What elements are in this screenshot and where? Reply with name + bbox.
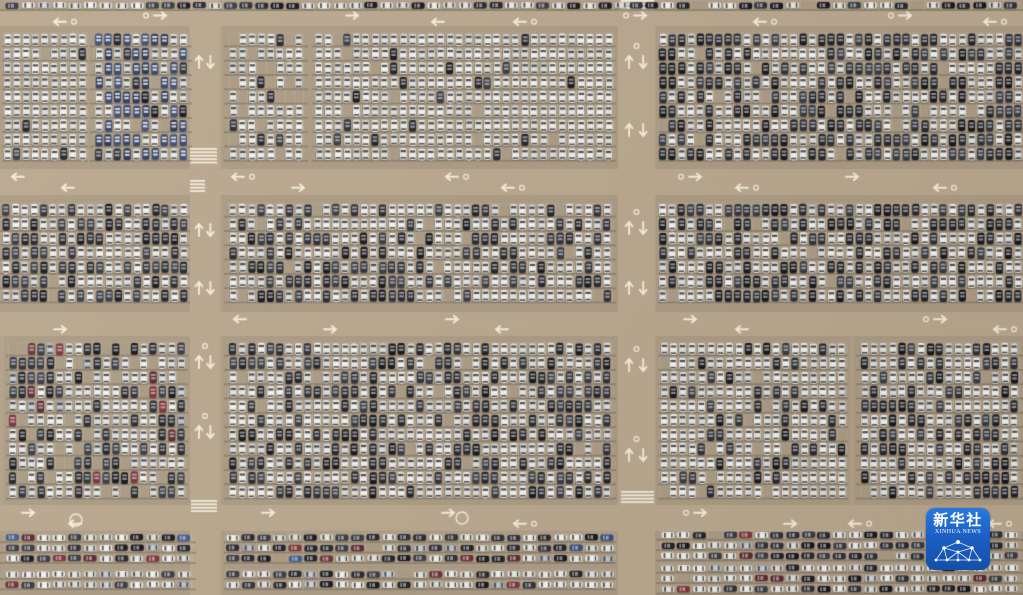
xinhua-watermark: 新华社 XINHUA NEWS [926,508,990,570]
aerial-photo-car-storage-lot: 新华社 XINHUA NEWS [0,0,1023,595]
xinhua-en-label: XINHUA NEWS [935,529,981,536]
parking-lot-photo-canvas [0,0,1023,595]
xinhua-cn-label: 新华社 [933,512,983,529]
network-icon [931,538,985,565]
